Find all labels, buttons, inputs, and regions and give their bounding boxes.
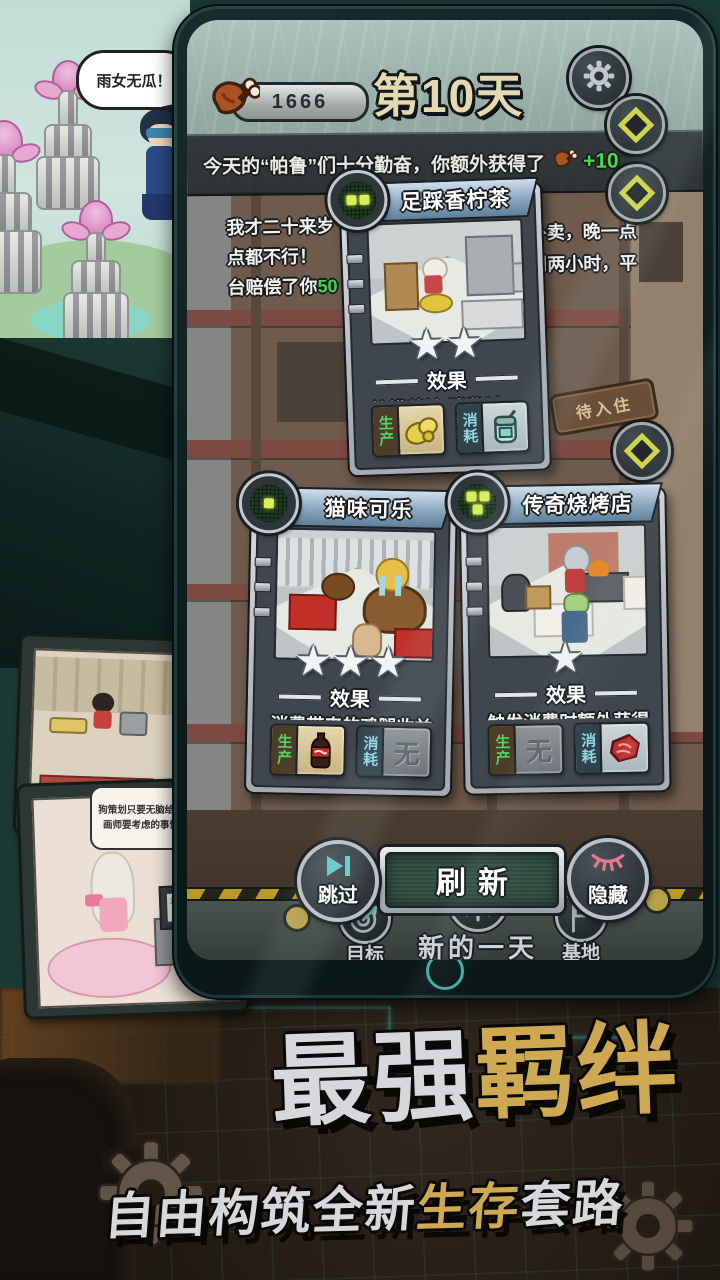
fridge: [465, 235, 515, 297]
promo-screenshot: 雨女无瓜！ 五彩斑斓的黑 狗策划只要无脑给需求就行了 画师要考虑的事情就很多了: [0, 0, 720, 1280]
shelf: [34, 656, 194, 715]
phone-mockup: 待入住 1666 第10天: [172, 4, 718, 1000]
nav-base-label: 基地: [562, 938, 600, 960]
rug: [46, 936, 172, 1000]
nav-goal-label: 目标: [346, 940, 384, 960]
skip-button[interactable]: 跳过: [297, 840, 379, 922]
promo-title: 最强羁绊: [236, 1016, 713, 1137]
meat-count: 1666: [272, 91, 329, 114]
drumstick-icon: [206, 73, 260, 132]
nav-new-day-label: 新的一天: [418, 928, 538, 960]
card-io-row: 生产 消耗 无: [269, 723, 432, 778]
card-title: 传奇烧烤店: [522, 488, 633, 520]
hide-label: 隐藏: [588, 879, 628, 908]
pot: [119, 711, 148, 736]
card-stars: ★★★: [255, 639, 446, 685]
box: [525, 585, 551, 609]
card-cat-cola[interactable]: 猫味可乐: [244, 490, 458, 798]
refresh-screen: 刷新: [385, 852, 559, 908]
promo-title-silver: 最强: [269, 1020, 477, 1139]
produce-label: 生产: [489, 726, 516, 774]
produce-none: 无: [526, 731, 553, 768]
tier-dots: [458, 483, 497, 522]
promo-sub-3: 生存: [414, 1178, 522, 1237]
tier-dots: [338, 180, 377, 219]
diamond-icon: [619, 175, 656, 212]
promo-sub-1: 自由构筑: [103, 1183, 315, 1245]
consume-slot: 消耗 无: [355, 725, 432, 779]
dialog-line: 台赔偿了你50: [227, 271, 338, 303]
card-io-row: 生产 消耗: [371, 400, 531, 457]
card-rivets: [466, 556, 484, 616]
character-body: [93, 710, 112, 729]
produce-label: 生产: [373, 407, 401, 456]
skip-icon: [327, 854, 350, 878]
promo-footer: 最强羁绊 自由构筑全新生存套路: [0, 988, 720, 1280]
effect-text: 触发消费时额外获得10个且每有一家相同单位额外获得的数量提升1…: [471, 706, 661, 720]
dialog-line: 外卖，晚一点: [528, 215, 637, 249]
diamond-icon: [624, 433, 661, 470]
consume-slot: 消耗: [573, 722, 650, 775]
effect-header: 效果: [255, 681, 446, 714]
consume-none: 无: [393, 733, 420, 771]
refresh-button[interactable]: 刷新: [377, 844, 567, 916]
promo-sub-2: 全新: [310, 1181, 418, 1240]
crates: [384, 262, 420, 311]
card-io-row: 生产 无 消耗: [487, 722, 650, 777]
hide-button[interactable]: 隐藏: [567, 838, 649, 920]
promo-title-gold: 羁绊: [473, 1013, 681, 1132]
artist-body: [99, 897, 128, 932]
speech-bubble-text: 雨女无瓜！: [96, 70, 171, 91]
card-title-banner: 传奇烧烤店: [492, 482, 663, 525]
card-rivets: [254, 557, 272, 617]
dialog-line: 点都不行！: [227, 241, 338, 273]
tier-dots: [250, 484, 289, 523]
produce-slot: 生产 无: [487, 723, 564, 776]
refresh-label: 刷新: [424, 858, 520, 902]
skip-label: 跳过: [318, 879, 358, 908]
day-counter: 第10天: [373, 60, 524, 126]
lemon-icon: [399, 405, 445, 455]
vacant-sign-text: 待入住: [574, 390, 634, 424]
card-rivets: [346, 254, 365, 315]
tears: [395, 576, 401, 596]
raw-meat-icon: [601, 724, 648, 773]
tea-jar-icon: [483, 402, 529, 452]
flame: [589, 560, 609, 576]
consume-slot: 消耗: [455, 400, 531, 455]
character-dress: [424, 275, 443, 294]
window: [639, 222, 683, 282]
game-screen: 待入住 1666 第10天: [187, 20, 703, 960]
cola-icon: [297, 726, 344, 775]
consume-label: 消耗: [575, 724, 602, 772]
drumstick-icon: [551, 146, 577, 177]
consume-label: 消耗: [357, 727, 384, 776]
gear-icon: [582, 59, 616, 98]
produce-label: 生产: [271, 725, 298, 774]
ultraman-body: [565, 569, 585, 593]
dialog-line: 我才二十来岁: [226, 211, 337, 243]
eye-closed-icon: [590, 851, 626, 878]
card-title-banner: 足踩香柠茶: [373, 177, 539, 223]
side-diamond-button[interactable]: [607, 96, 665, 154]
side-diamond-button[interactable]: [608, 164, 666, 222]
npc-dialog-left: 我才二十来岁 点都不行！ 台赔偿了你50: [226, 211, 338, 303]
card-title: 猫味可乐: [325, 492, 414, 524]
card-foot-lemon-tea[interactable]: 足踩香柠茶 ★★ 效果 柠檬茶被 消费时，有: [338, 181, 552, 478]
card-title-banner: 猫味可乐: [283, 487, 455, 530]
diamond-icon: [618, 107, 655, 144]
produce-slot: 生产: [371, 403, 447, 458]
side-diamond-button[interactable]: [613, 422, 671, 480]
dialog-line: 到两小时，平: [529, 247, 638, 281]
table: [623, 575, 648, 610]
dark-wall: [0, 338, 192, 668]
counter: [512, 261, 527, 293]
card-title: 足踩香柠茶: [400, 183, 511, 217]
food-tray: [49, 717, 88, 734]
promo-sub-4: 套路: [518, 1175, 626, 1234]
effect-header: 效果: [471, 677, 661, 709]
tears: [379, 576, 385, 596]
card-stars: ★★: [352, 320, 539, 368]
card-legend-bbq[interactable]: 传奇烧烤店: [458, 486, 671, 796]
card-stars: ★: [470, 635, 661, 680]
consume-label: 消耗: [457, 404, 485, 453]
bonus-amount: +10: [583, 149, 619, 173]
produce-slot: 生产: [269, 723, 346, 777]
settings-button[interactable]: [569, 48, 629, 108]
meat-counter: 1666: [231, 82, 369, 122]
